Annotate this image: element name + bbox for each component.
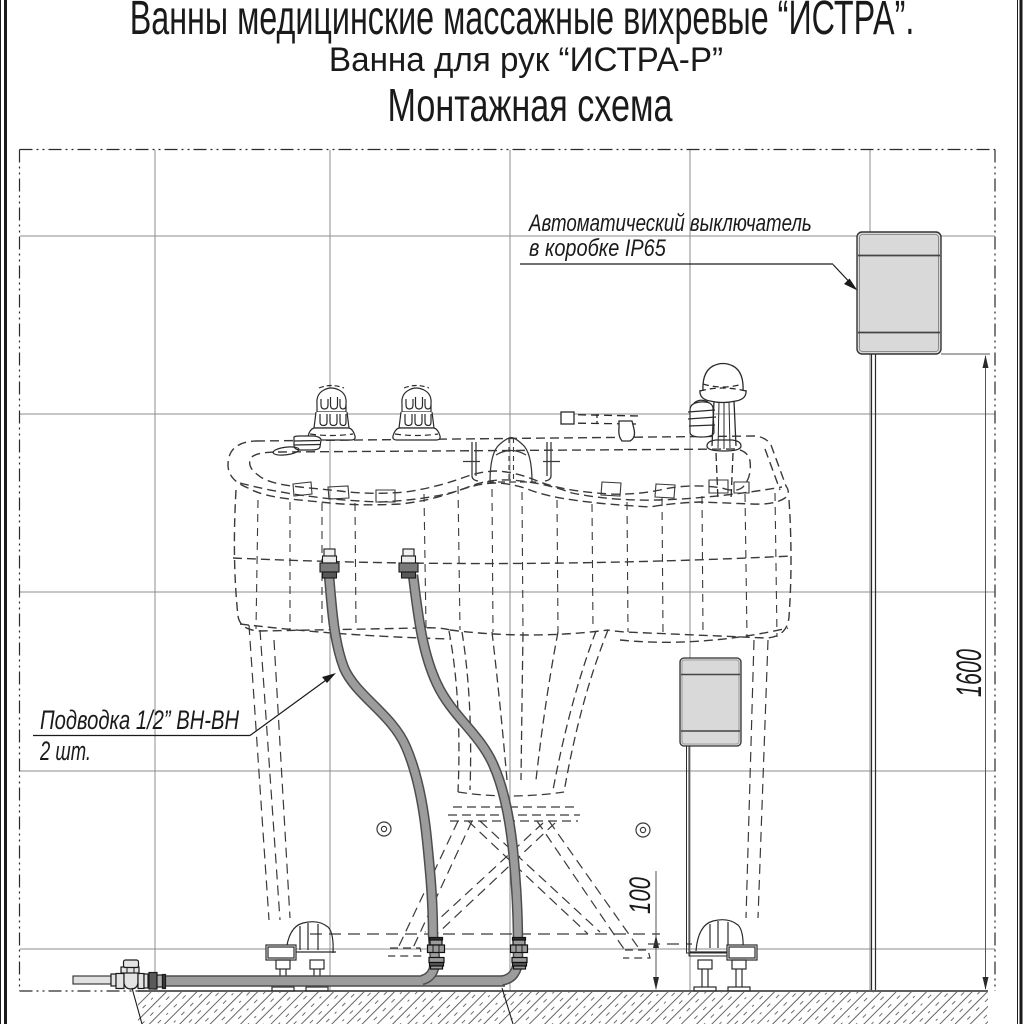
svg-text:Ванны медицинские массажные ви: Ванны медицинские массажные вихревые “ИС… <box>130 0 915 45</box>
svg-text:Подводка 1/2” ВН-ВН: Подводка 1/2” ВН-ВН <box>40 705 240 736</box>
svg-text:1600: 1600 <box>951 649 990 697</box>
svg-text:100: 100 <box>623 877 657 914</box>
svg-text:Ванна для рук “ИСТРА-Р”: Ванна для рук “ИСТРА-Р” <box>329 42 723 79</box>
svg-text:Автоматический выключатель: Автоматический выключатель <box>527 210 811 237</box>
svg-text:Монтажная схема: Монтажная схема <box>387 79 672 131</box>
svg-text:в коробке IP65: в коробке IP65 <box>529 234 666 261</box>
svg-text:2 шт.: 2 шт. <box>39 735 91 765</box>
